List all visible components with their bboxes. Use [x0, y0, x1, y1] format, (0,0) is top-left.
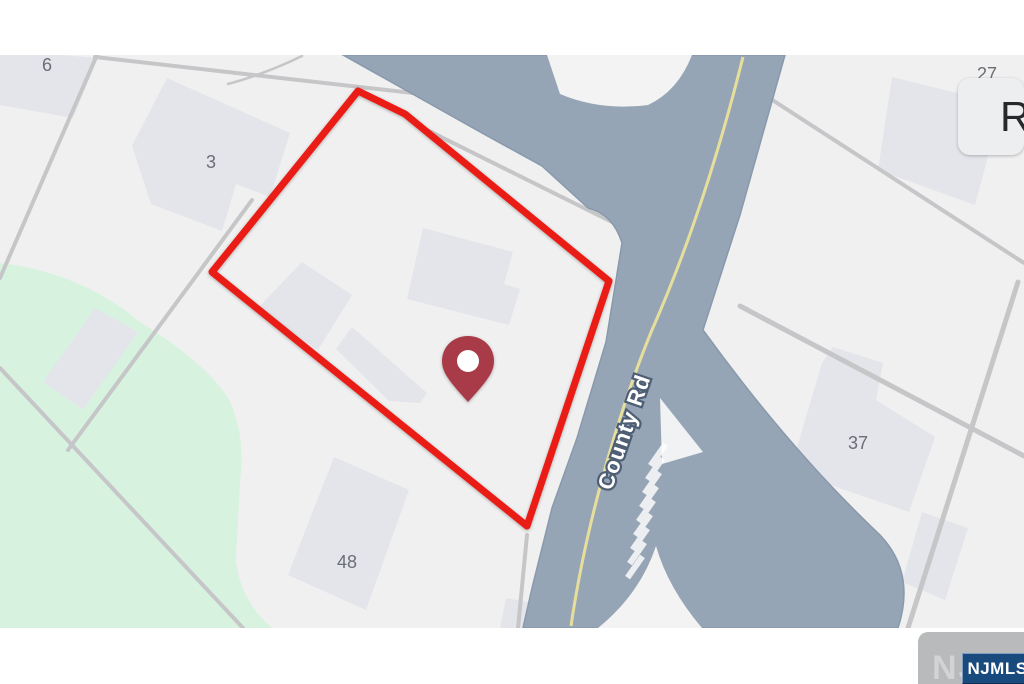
- map-overlay-button[interactable]: R: [958, 78, 1024, 155]
- listing-map-screenshot: County Rd 6 3 27 37 48 R NJMLS NJMLS: [0, 0, 1024, 684]
- parcel-label-48: 48: [337, 552, 357, 572]
- pin-center-dot: [457, 350, 479, 372]
- parcel-label-3: 3: [206, 152, 216, 172]
- parcel-label-37: 37: [848, 433, 868, 453]
- parcel-label-6: 6: [42, 55, 52, 75]
- njmls-logo-badge: NJMLS: [962, 653, 1024, 684]
- map-canvas[interactable]: County Rd 6 3 27 37 48: [0, 55, 1024, 628]
